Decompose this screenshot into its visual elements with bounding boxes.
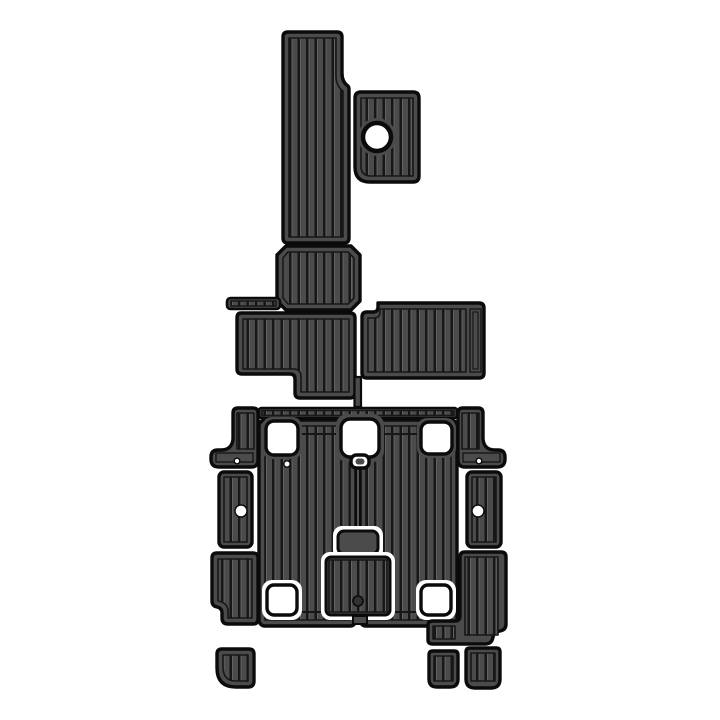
left-upper-side-pad	[219, 472, 252, 547]
locator-dot	[476, 458, 482, 464]
mid-right-pad	[362, 303, 484, 378]
cup-holder-cutout	[363, 123, 391, 151]
bottom-left-cutout	[262, 580, 302, 620]
center-latch-cutout	[351, 455, 369, 468]
round-cutout	[235, 505, 247, 517]
bottom-right-step-pad-2	[466, 648, 500, 688]
locator-dot	[234, 458, 240, 464]
helm-step-pad	[277, 246, 360, 310]
right-upper-side-pad	[467, 472, 501, 547]
bottom-right-step-pad-1	[429, 651, 458, 687]
bottom-left-step-pad	[217, 649, 254, 687]
drain-dot	[353, 596, 363, 606]
bow-column-pad	[283, 32, 349, 243]
product-image-canvas	[0, 0, 720, 720]
left-tab-strip	[227, 298, 280, 309]
left-locator-dot	[284, 461, 290, 467]
round-cutout	[472, 505, 484, 517]
top-right-cutout	[417, 418, 456, 458]
seam-tab	[353, 616, 367, 624]
connector-stick	[355, 377, 362, 407]
top-left-cutout	[262, 417, 302, 459]
end-plank	[470, 309, 481, 372]
side-tab-pad	[355, 92, 419, 182]
bottom-right-cutout	[416, 580, 456, 620]
center-hatch-large	[321, 552, 395, 620]
boat-deck-pad-kit-image	[0, 0, 720, 720]
